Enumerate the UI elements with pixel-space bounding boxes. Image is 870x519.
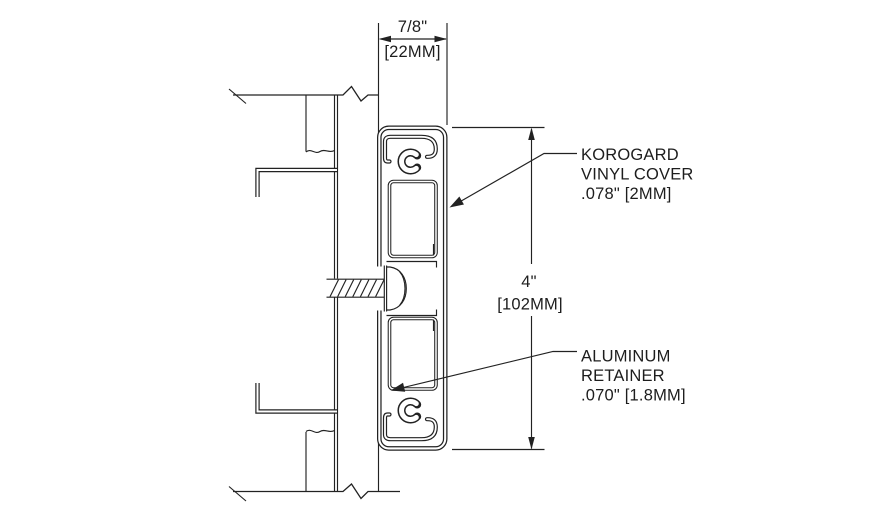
screw-thread-hatch <box>330 280 384 297</box>
material-break-wave-bottom <box>306 430 335 432</box>
furring-channel-top <box>258 170 338 197</box>
retainer-pocket-upper <box>390 182 437 257</box>
leader-aluminum-retainer: ALUMINUM RETAINER .070" [1.8MM] <box>389 348 685 405</box>
leader-line <box>393 352 577 391</box>
dimension-height: 4" [102MM] <box>452 128 563 450</box>
callout-cover-line1: KOROGARD <box>581 146 679 164</box>
aluminum-retainer-profile <box>385 137 437 439</box>
leader-arrow <box>447 197 464 212</box>
dim-arrow-left <box>379 36 392 42</box>
snap-boss-bottom <box>401 402 417 420</box>
callout-retainer-line3: .070" [1.8MM] <box>581 387 686 405</box>
material-break-wave-top <box>306 151 335 153</box>
break-line-top <box>229 87 379 104</box>
wall-stud-lines <box>335 95 338 492</box>
cut-tick-top <box>229 89 246 104</box>
snap-boss-top <box>401 153 417 171</box>
retainer-pocket-lower <box>390 319 437 390</box>
leader-korogard-cover: KOROGARD VINYL COVER .078" [2MM] <box>447 146 693 211</box>
dim-arrow-right <box>435 36 448 42</box>
callout-cover-line2: VINYL COVER <box>581 166 694 184</box>
wall-guard-section-drawing: 7/8" [22MM] 4" [102MM] KOROGARD VINYL CO… <box>0 0 870 519</box>
dim-arrow-down <box>528 437 535 450</box>
furring-channel-bottom <box>258 383 338 412</box>
dim-width-metric: [22MM] <box>384 43 440 61</box>
screw-head <box>384 266 406 312</box>
callout-retainer-line2: RETAINER <box>581 367 665 385</box>
dim-arrow-up <box>528 128 535 141</box>
dim-width-value: 7/8" <box>398 18 428 36</box>
dimension-width: 7/8" [22MM] <box>379 18 448 125</box>
technical-drawing-page: 7/8" [22MM] 4" [102MM] KOROGARD VINYL CO… <box>0 0 870 519</box>
dim-height-value: 4" <box>521 273 536 291</box>
screw-fastener <box>327 266 407 312</box>
dim-height-metric: [102MM] <box>497 296 563 314</box>
callout-cover-line3: .078" [2MM] <box>581 185 672 203</box>
break-line-bottom <box>229 484 400 501</box>
gypsum-board-bottom <box>306 430 335 491</box>
gypsum-board-top <box>306 95 335 152</box>
wall-section <box>229 23 400 501</box>
callout-retainer-line1: ALUMINUM <box>581 348 671 366</box>
retainer-center-boss <box>387 262 437 316</box>
cut-tick-bottom <box>229 487 246 502</box>
leader-line <box>453 154 578 207</box>
